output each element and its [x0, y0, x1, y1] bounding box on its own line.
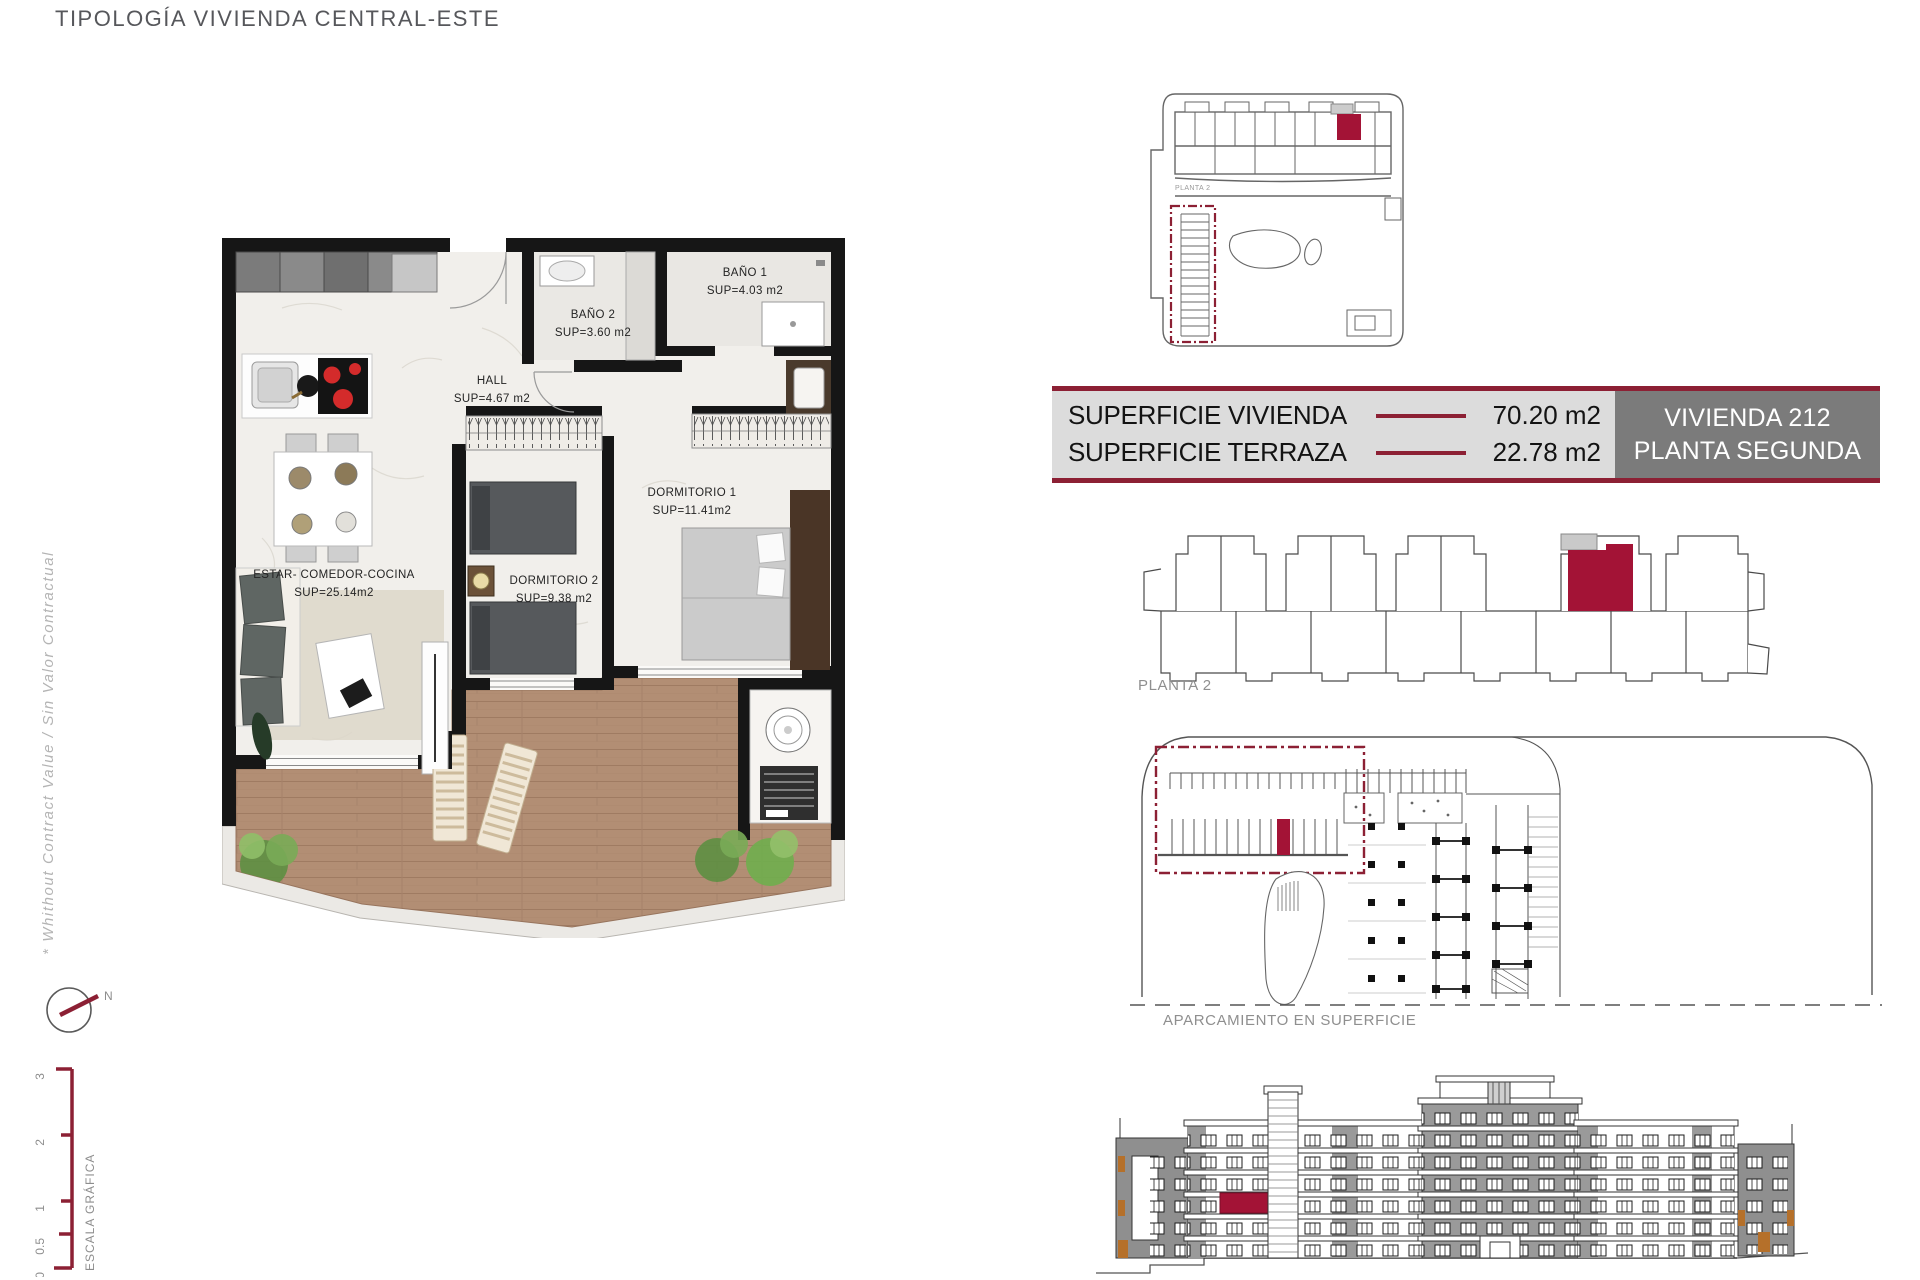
- scale-tick: 3: [33, 1073, 47, 1080]
- room-label: HALL: [477, 375, 508, 387]
- parking-plan: [1126, 727, 1890, 1017]
- site-plan-small-label: PLANTA 2: [1175, 185, 1210, 192]
- summary-areas: SUPERFICIE VIVIENDA 70.20 m2 SUPERFICIE …: [1052, 391, 1615, 478]
- site-plan: PLANTA 2: [1141, 86, 1423, 366]
- sink-icon: [549, 261, 585, 281]
- unit-name: VIVIENDA 212: [1664, 404, 1830, 433]
- tv-console: [422, 642, 448, 774]
- lamp-icon: [473, 573, 489, 589]
- plan-sheet: TIPOLOGÍA VIVIENDA CENTRAL-ESTE * Whitho…: [0, 0, 1920, 1280]
- parking-blob: [1265, 872, 1325, 1005]
- elevation-left-block: [1184, 1120, 1426, 1258]
- room-label: BAÑO 2: [571, 308, 616, 321]
- kitchen-cabinets: [236, 252, 437, 292]
- stall-row-mid: [1158, 819, 1348, 855]
- unit-floor: PLANTA SEGUNDA: [1634, 437, 1861, 466]
- key-highlight-unit: [1568, 544, 1633, 611]
- dining-table: [274, 434, 372, 562]
- floor-plan: ESTAR- COMEDOR-COCINA SUP=25.14m2 HALL S…: [222, 238, 845, 938]
- scale-bar: 3 2 1 0.5 0 ESCALA GRÁFICA: [28, 1063, 113, 1277]
- stall-row-top: [1170, 769, 1466, 793]
- column-grid: [1348, 823, 1426, 993]
- summary-label: SUPERFICIE TERRAZA: [1068, 437, 1376, 468]
- summary-label: SUPERFICIE VIVIENDA: [1068, 400, 1376, 431]
- scale-tick: 0: [33, 1272, 47, 1277]
- elevation-stair-tower: [1264, 1086, 1302, 1258]
- room-area: SUP=4.67 m2: [454, 393, 530, 405]
- sink-icon: [794, 368, 824, 408]
- right-structure-b: [1492, 805, 1558, 999]
- scale-bar-label: ESCALA GRÁFICA: [82, 1154, 97, 1271]
- scale-tick: 0.5: [33, 1238, 47, 1255]
- north-label: N: [104, 989, 113, 1003]
- parking-label: APARCAMIENTO EN SUPERFICIE: [1163, 1012, 1416, 1029]
- elevation-highlight-unit: [1220, 1193, 1268, 1213]
- room-area: SUP=3.60 m2: [555, 327, 631, 339]
- room-label: BAÑO 1: [723, 266, 768, 279]
- room-label: DORMITORIO 2: [510, 575, 599, 587]
- summary-table: SUPERFICIE VIVIENDA 70.20 m2 SUPERFICIE …: [1052, 386, 1880, 483]
- summary-value: 70.20 m2: [1480, 400, 1615, 431]
- page-title: TIPOLOGÍA VIVIENDA CENTRAL-ESTE: [55, 6, 500, 32]
- entrance-gap: [450, 238, 506, 252]
- unit-badge: VIVIENDA 212 PLANTA SEGUNDA: [1615, 391, 1880, 478]
- elevation-right-wing: [1738, 1124, 1794, 1256]
- headboard: [790, 490, 830, 670]
- elevation-right-block: [1574, 1120, 1738, 1258]
- summary-value: 22.78 m2: [1480, 437, 1615, 468]
- key-plan-label: PLANTA 2: [1138, 677, 1212, 694]
- laundry-area: [750, 690, 831, 823]
- room-area: SUP=11.41m2: [653, 505, 732, 517]
- table-row: SUPERFICIE TERRAZA 22.78 m2: [1068, 434, 1615, 471]
- dash-rule: [1376, 414, 1465, 418]
- key-plan: PLANTA 2: [1136, 514, 1776, 694]
- elevation-center-block: [1418, 1076, 1582, 1258]
- scale-tick: 2: [33, 1139, 47, 1146]
- compass: N: [36, 975, 131, 1043]
- compass-needle-icon: [60, 996, 98, 1015]
- room-area: SUP=25.14m2: [294, 587, 374, 599]
- elevation-drawing: [1092, 1060, 1814, 1278]
- dash-rule: [1376, 451, 1465, 455]
- room-label: DORMITORIO 1: [648, 487, 737, 499]
- scale-tick: 1: [33, 1205, 47, 1212]
- bathroom2-fixtures: [534, 252, 655, 360]
- key-terrace-gray: [1561, 534, 1597, 550]
- kitchen-counter: [242, 354, 372, 418]
- room-area: SUP=4.03 m2: [707, 285, 783, 297]
- room-label: ESTAR- COMEDOR-COCINA: [253, 569, 415, 581]
- site-terrace-gray: [1331, 104, 1353, 114]
- room-area: SUP=9.38 m2: [516, 593, 592, 605]
- table-row: SUPERFICIE VIVIENDA 70.20 m2: [1068, 397, 1615, 434]
- parking-highlight-stall: [1277, 819, 1290, 855]
- site-highlight-unit: [1337, 114, 1361, 140]
- side-note: * Whithout Contract Value / Sin Valor Co…: [40, 551, 57, 955]
- elevation-left-wing: [1116, 1118, 1188, 1258]
- right-structure-a: [1432, 823, 1470, 999]
- ramp-boxes: [1344, 793, 1462, 823]
